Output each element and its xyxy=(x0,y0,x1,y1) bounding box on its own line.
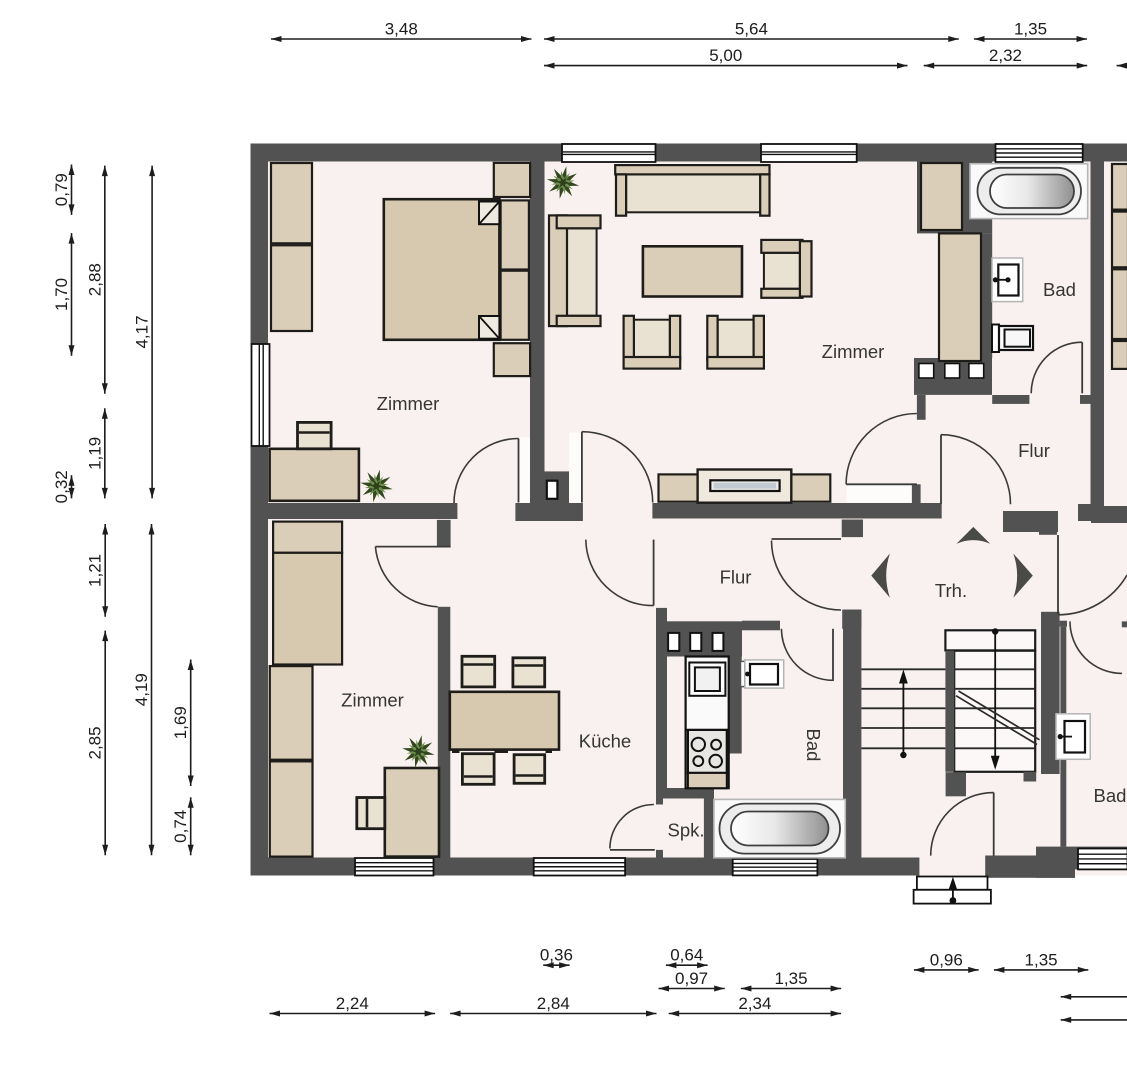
svg-text:1,35: 1,35 xyxy=(1025,950,1058,969)
svg-text:Bad: Bad xyxy=(803,729,824,762)
svg-text:1,35: 1,35 xyxy=(774,969,807,988)
svg-text:Bad: Bad xyxy=(1094,785,1127,806)
svg-text:Zimmer: Zimmer xyxy=(377,393,440,414)
svg-text:Flur: Flur xyxy=(1018,440,1050,461)
svg-text:Spk.: Spk. xyxy=(667,820,704,841)
svg-text:1,70: 1,70 xyxy=(52,278,71,311)
svg-text:1,21: 1,21 xyxy=(86,554,105,587)
svg-text:4,19: 4,19 xyxy=(132,673,151,706)
svg-text:Zimmer: Zimmer xyxy=(822,341,885,362)
svg-text:1,69: 1,69 xyxy=(171,706,190,739)
svg-text:0,79: 0,79 xyxy=(52,173,71,206)
svg-text:1,19: 1,19 xyxy=(85,437,104,470)
svg-text:5,00: 5,00 xyxy=(709,46,742,65)
svg-text:Bad: Bad xyxy=(1043,279,1076,300)
svg-text:Flur: Flur xyxy=(720,567,752,588)
svg-text:Trh.: Trh. xyxy=(935,580,967,601)
svg-text:0,96: 0,96 xyxy=(930,950,963,969)
svg-text:2,84: 2,84 xyxy=(537,994,570,1013)
svg-text:4,17: 4,17 xyxy=(133,315,152,348)
svg-text:2,88: 2,88 xyxy=(85,263,104,296)
svg-text:2,24: 2,24 xyxy=(336,994,369,1013)
svg-text:0,32: 0,32 xyxy=(52,470,71,503)
svg-text:Zimmer: Zimmer xyxy=(341,690,404,711)
svg-text:1,35: 1,35 xyxy=(1014,20,1047,39)
svg-text:3,48: 3,48 xyxy=(385,20,418,39)
svg-text:0,64: 0,64 xyxy=(670,946,703,965)
svg-text:0,74: 0,74 xyxy=(171,810,190,843)
svg-text:Küche: Küche xyxy=(579,731,631,752)
svg-text:2,32: 2,32 xyxy=(989,46,1022,65)
svg-text:2,34: 2,34 xyxy=(738,994,771,1013)
svg-text:0,36: 0,36 xyxy=(540,946,573,965)
svg-text:5,64: 5,64 xyxy=(735,20,768,39)
svg-text:0,97: 0,97 xyxy=(675,969,708,988)
svg-text:2,85: 2,85 xyxy=(86,726,105,759)
